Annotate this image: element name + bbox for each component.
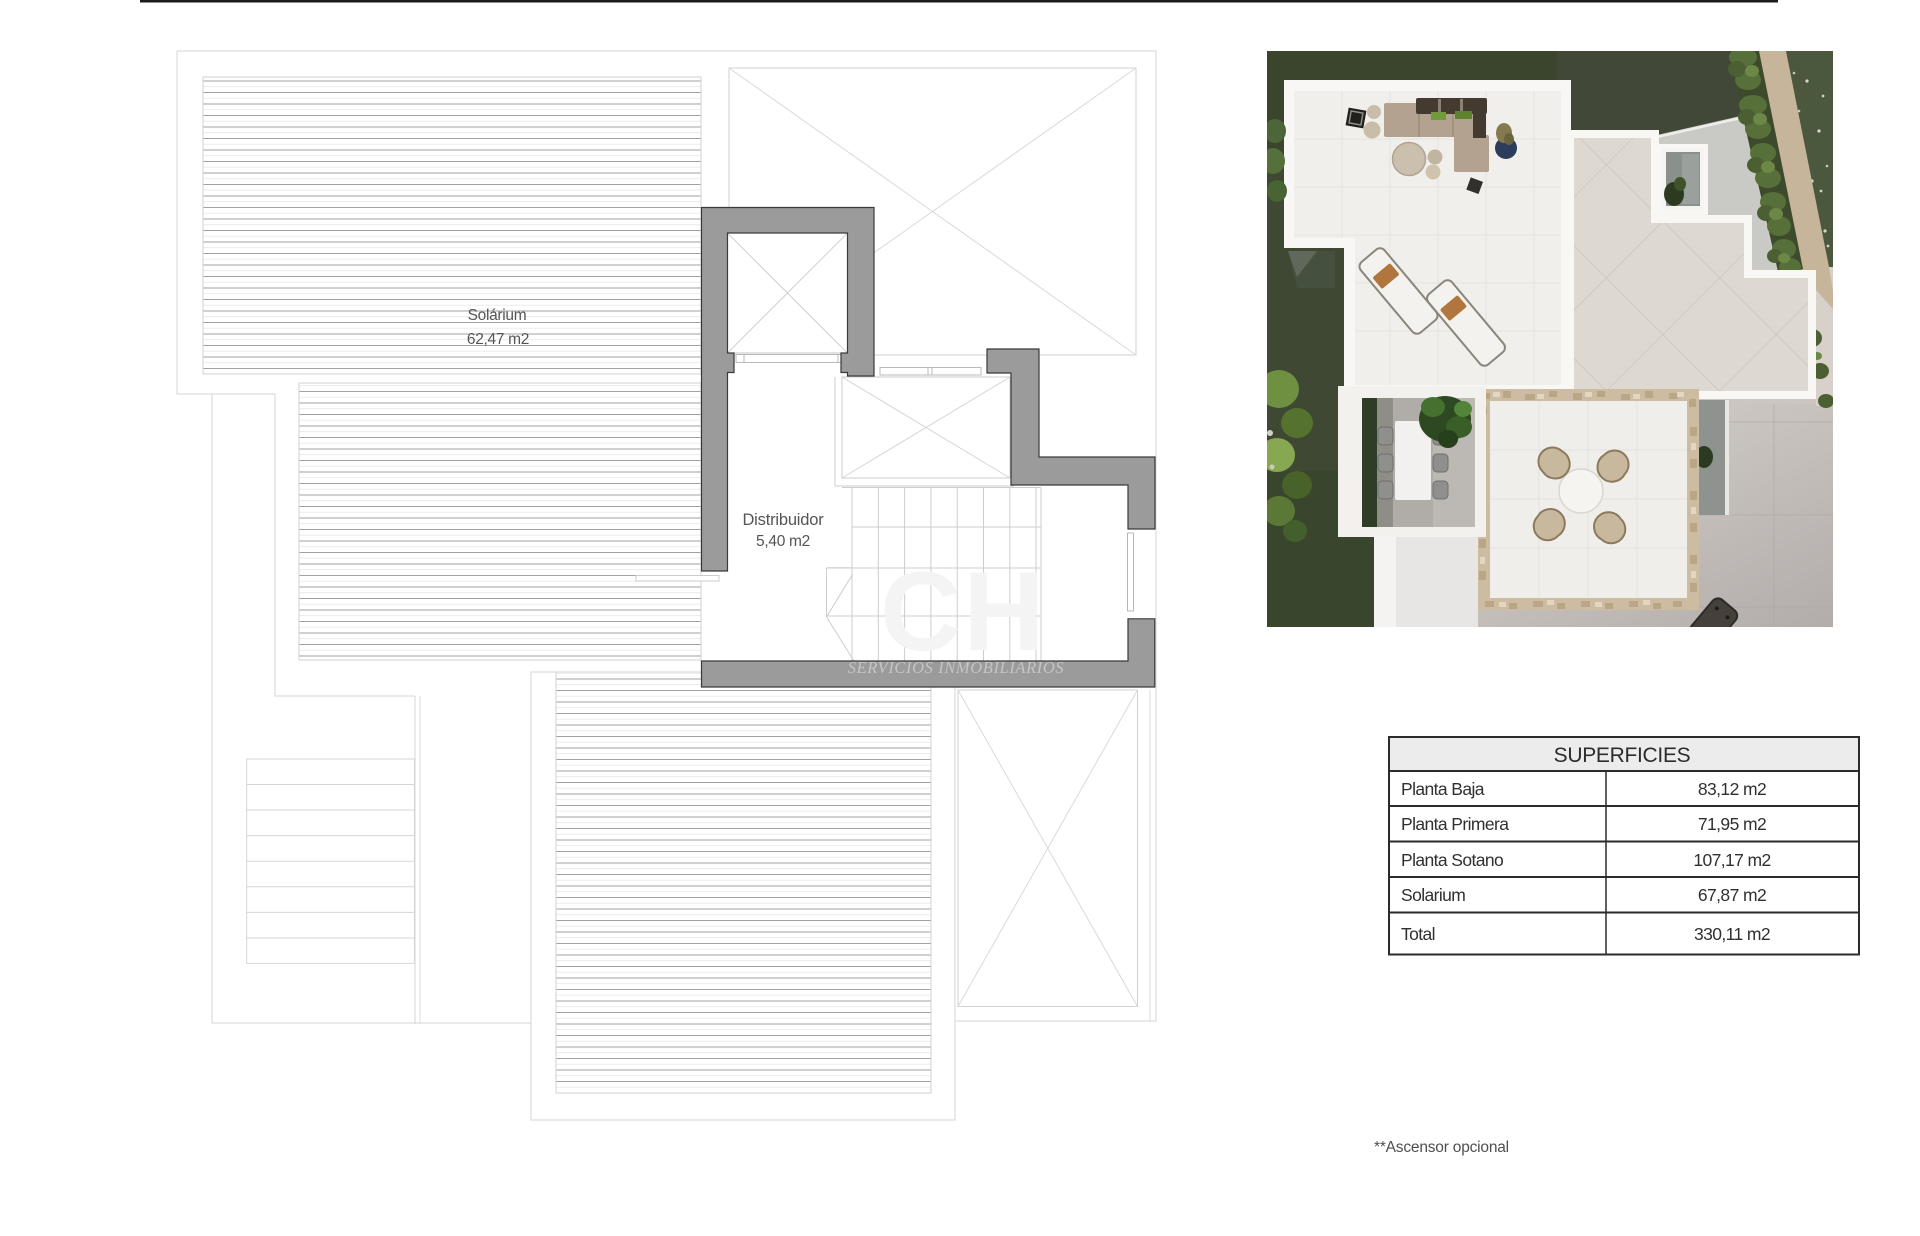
svg-text:62,47 m2: 62,47 m2: [467, 331, 529, 348]
svg-text:Solárium: Solárium: [468, 307, 527, 324]
svg-text:5,40 m2: 5,40 m2: [756, 533, 810, 550]
svg-text:CH: CH: [880, 549, 1046, 674]
svg-text:SERVICIOS INMOBILIARIOS: SERVICIOS INMOBILIARIOS: [848, 658, 1065, 677]
svg-text:71,95 m2: 71,95 m2: [1698, 814, 1766, 834]
svg-text:SUPERFICIES: SUPERFICIES: [1554, 744, 1691, 767]
svg-text:**Ascensor opcional: **Ascensor opcional: [1374, 1139, 1509, 1156]
svg-text:Planta Baja: Planta Baja: [1401, 779, 1485, 799]
svg-text:Solarium: Solarium: [1401, 885, 1465, 905]
svg-text:Total: Total: [1401, 924, 1435, 944]
svg-text:Distribuidor: Distribuidor: [742, 511, 824, 529]
svg-text:330,11 m2: 330,11 m2: [1694, 924, 1770, 944]
svg-text:107,17 m2: 107,17 m2: [1693, 850, 1770, 870]
svg-text:Planta Primera: Planta Primera: [1401, 814, 1509, 834]
svg-text:83,12 m2: 83,12 m2: [1698, 779, 1766, 799]
svg-text:67,87 m2: 67,87 m2: [1698, 885, 1766, 905]
svg-text:Planta Sotano: Planta Sotano: [1401, 850, 1503, 870]
